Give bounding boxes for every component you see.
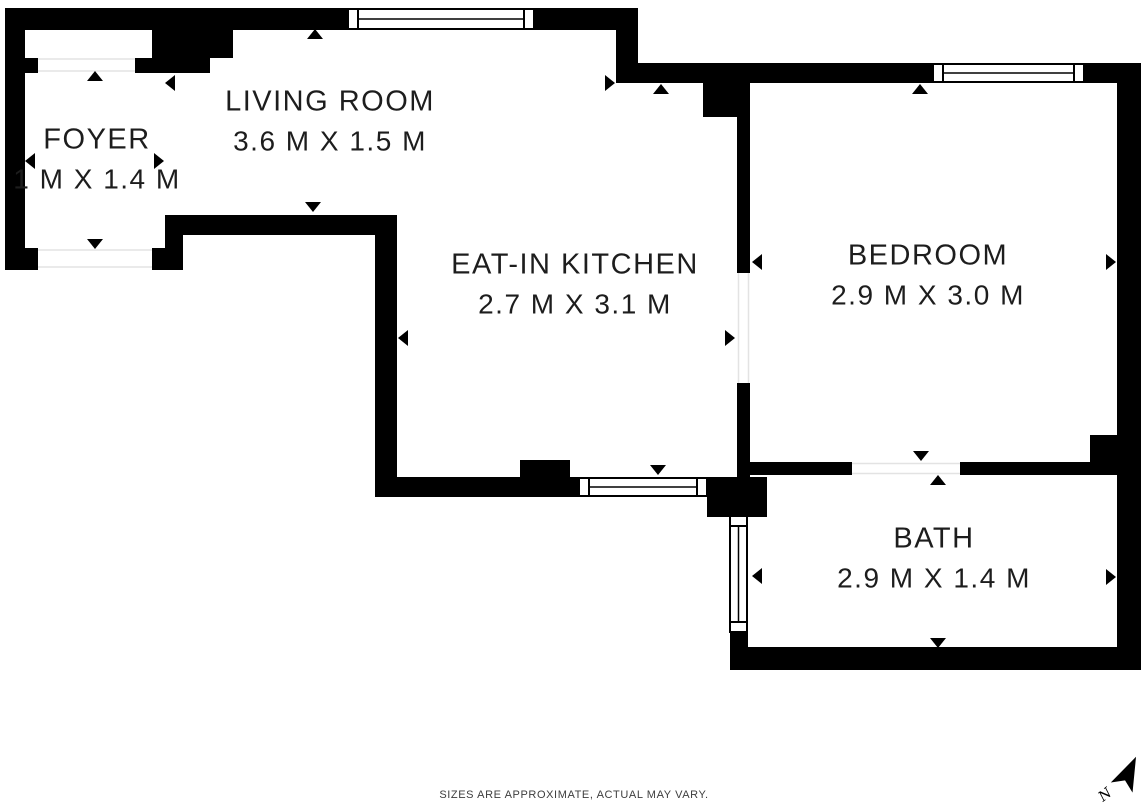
window-icon-living-room-top [348,9,534,29]
room-dims-kitchen: 2.7 M X 3.1 M [451,285,699,325]
room-name-foyer: FOYER [13,121,180,160]
room-name-bedroom: BEDROOM [831,237,1025,276]
room-label-living-room: LIVING ROOM 3.6 M X 1.5 M [225,83,435,162]
room-dims-living-room: 3.6 M X 1.5 M [225,122,435,162]
room-dims-foyer: 1 M X 1.4 M [13,160,180,200]
window-icon-bedroom-top [933,64,1084,82]
room-label-bath: BATH 2.9 M X 1.4 M [837,520,1031,599]
window-icon-bath-left [730,516,747,632]
room-label-bedroom: BEDROOM 2.9 M X 3.0 M [831,237,1025,316]
room-dims-bath: 2.9 M X 1.4 M [837,559,1031,599]
room-name-living-room: LIVING ROOM [225,83,435,122]
disclaimer-text: SIZES ARE APPROXIMATE, ACTUAL MAY VARY. [0,789,1148,801]
room-dims-bedroom: 2.9 M X 3.0 M [831,276,1025,316]
room-name-kitchen: EAT-IN KITCHEN [451,246,699,285]
floor-plan: N FOYER 1 M X 1.4 M LIVING ROOM 3.6 M X … [0,0,1148,808]
window-icon-kitchen-bottom [579,478,707,496]
room-label-foyer: FOYER 1 M X 1.4 M [13,121,180,200]
room-label-kitchen: EAT-IN KITCHEN 2.7 M X 3.1 M [451,246,699,325]
room-name-bath: BATH [837,520,1031,559]
